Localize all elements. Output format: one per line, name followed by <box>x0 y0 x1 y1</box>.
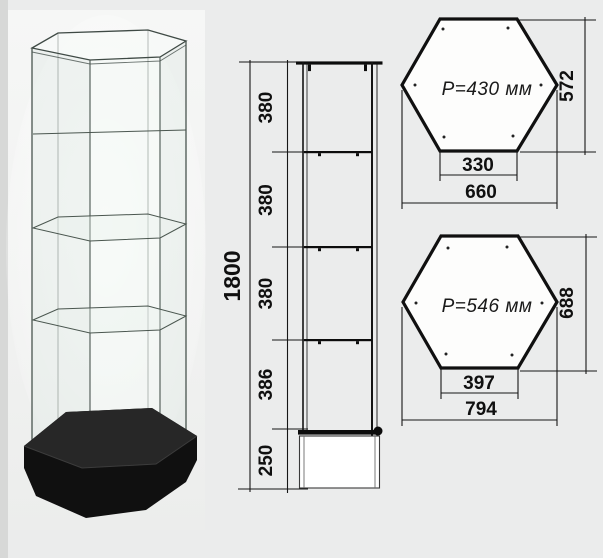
glass-panes <box>32 41 186 468</box>
dimension-total-height: 1800 <box>219 250 245 301</box>
drawing-canvas: 1800 380 380 380 386 250 P=430 мм <box>0 0 603 558</box>
dimension-segment-1: 380 <box>256 92 277 124</box>
dimension-572: 572 <box>557 70 578 102</box>
deck-corner-detail <box>374 427 383 436</box>
dimension-794: 794 <box>465 399 497 420</box>
dimension-segment-2: 380 <box>256 184 277 216</box>
perimeter-label-546: P=546 мм <box>442 296 533 317</box>
dimension-segment-3: 380 <box>256 278 277 310</box>
dimension-688: 688 <box>557 287 578 319</box>
plinth-box <box>300 436 380 488</box>
perimeter-label-430: P=430 мм <box>442 79 533 100</box>
dimension-660: 660 <box>465 182 497 203</box>
drawing-sheet: 1800 380 380 380 386 250 P=430 мм <box>0 0 603 558</box>
dimension-segment-5: 250 <box>256 445 277 477</box>
cabinet-bottom-deck <box>298 430 380 435</box>
dimension-segment-4: 386 <box>256 369 277 401</box>
dimension-330: 330 <box>462 155 494 176</box>
top-panel <box>296 61 383 64</box>
top-hook-right <box>364 65 367 72</box>
dimension-397: 397 <box>463 373 495 394</box>
top-hook-left <box>308 65 311 72</box>
product-photo <box>6 10 206 530</box>
